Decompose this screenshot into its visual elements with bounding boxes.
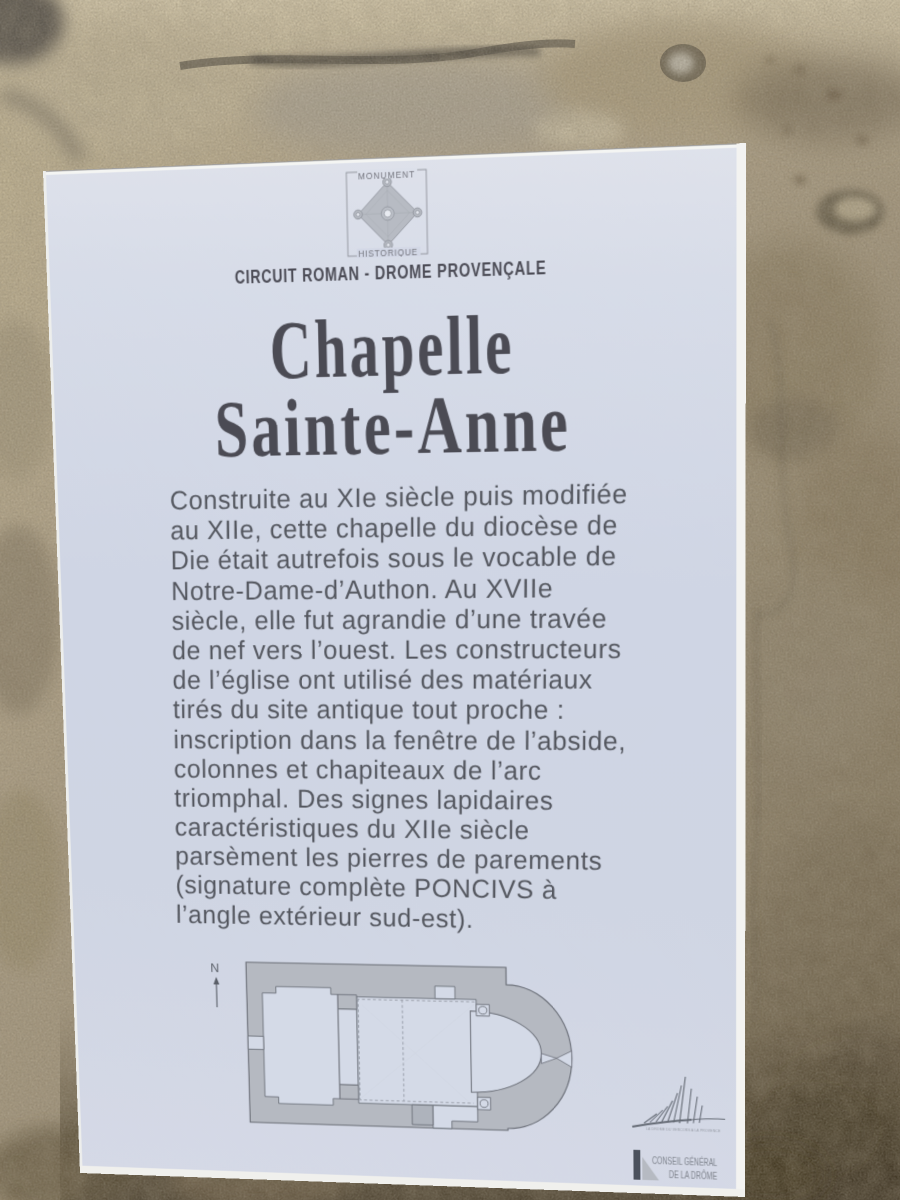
- svg-text:HISTORIQUE: HISTORIQUE: [358, 247, 418, 259]
- svg-text:MONUMENT: MONUMENT: [358, 169, 416, 182]
- svg-text:CONSEIL GÉNÉRAL: CONSEIL GÉNÉRAL: [652, 1156, 717, 1169]
- svg-text:N: N: [210, 960, 219, 975]
- svg-text:DE LA DRÔME: DE LA DRÔME: [669, 1170, 718, 1182]
- svg-text:LA DROME DU VERCORS A LA PROVE: LA DROME DU VERCORS A LA PROVENCE: [646, 1128, 721, 1134]
